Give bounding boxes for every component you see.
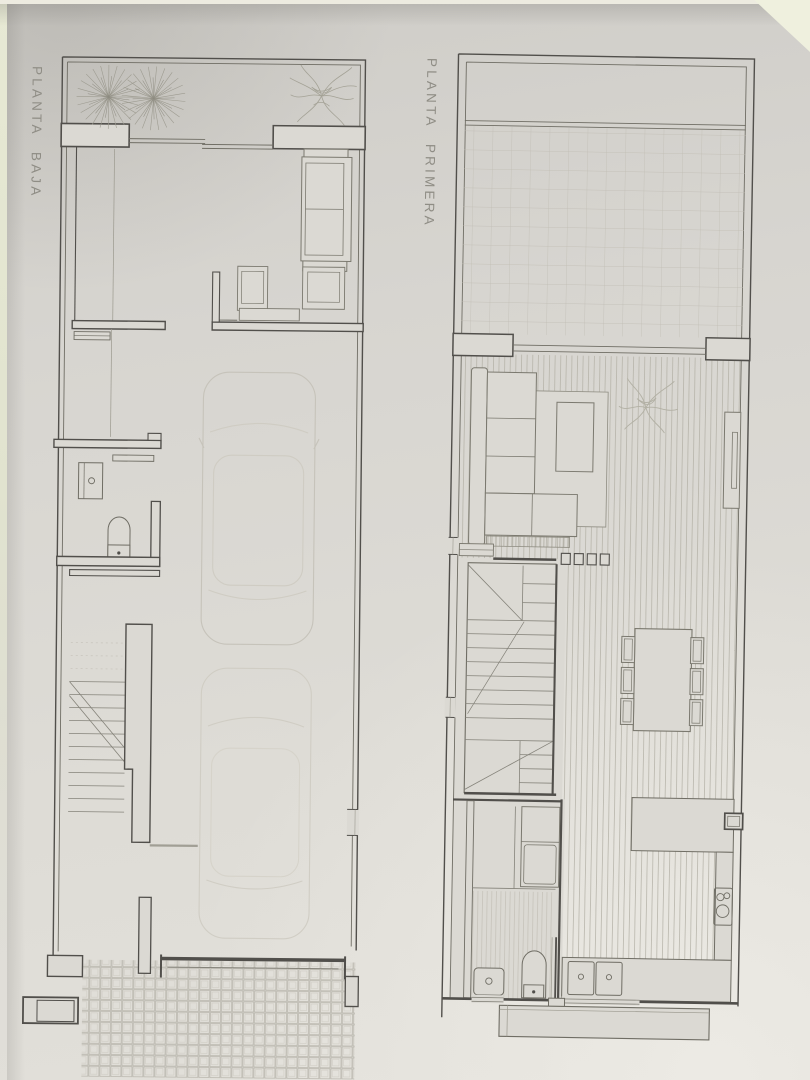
sliding-window bbox=[513, 345, 706, 354]
sink-icon bbox=[78, 463, 102, 499]
tv-unit bbox=[723, 412, 741, 508]
radiator bbox=[74, 332, 110, 340]
dining-set bbox=[620, 628, 704, 731]
living-room bbox=[72, 147, 365, 343]
floor-plan-sheet-photo: PLANTA BAJA PLANTA PRIMERA bbox=[0, 0, 810, 1080]
bathroom bbox=[53, 328, 163, 576]
car-outline bbox=[197, 372, 320, 645]
handrail bbox=[150, 845, 198, 846]
sofa bbox=[301, 149, 352, 272]
coffee-table bbox=[556, 402, 594, 472]
stair-wall bbox=[124, 624, 152, 842]
floor-plans-drawing bbox=[0, 0, 810, 1080]
radiator bbox=[459, 544, 493, 557]
plan-planta-baja bbox=[22, 56, 368, 1079]
terrace-tile-grid bbox=[461, 126, 746, 339]
plan-planta-primera bbox=[439, 54, 756, 1041]
window-niche bbox=[725, 813, 743, 829]
wall-living-left bbox=[72, 321, 165, 330]
terrace bbox=[453, 120, 754, 360]
toilet-icon bbox=[522, 951, 547, 998]
balcony-slab bbox=[499, 1005, 710, 1040]
staircase bbox=[68, 624, 200, 846]
window-right-wall bbox=[347, 809, 359, 835]
kitchen-counter-right bbox=[714, 852, 733, 960]
bush-icon bbox=[289, 65, 357, 126]
tree-icon bbox=[76, 65, 141, 130]
kitchen-counter-top bbox=[631, 798, 734, 853]
dining-table bbox=[633, 629, 692, 732]
entry-porch bbox=[23, 997, 78, 1024]
armchairs bbox=[237, 266, 345, 321]
shower bbox=[521, 807, 560, 888]
sliding-door bbox=[129, 139, 273, 150]
car-outline-2 bbox=[199, 668, 312, 939]
sink-icon bbox=[474, 968, 504, 996]
bench-hatched bbox=[486, 536, 569, 547]
door-leaf bbox=[113, 455, 154, 461]
wall-living-right bbox=[212, 322, 363, 332]
pavement-tiles bbox=[81, 960, 355, 1080]
toilet-icon bbox=[108, 517, 130, 559]
garden-patio bbox=[61, 56, 366, 150]
